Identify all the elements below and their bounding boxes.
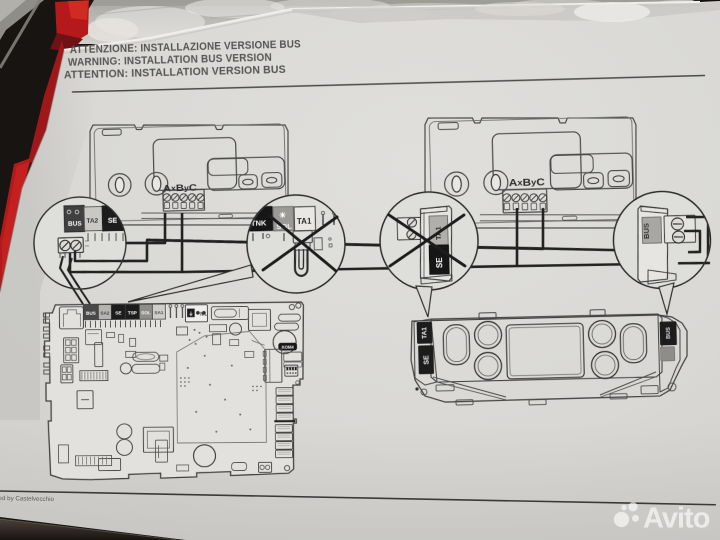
svg-text:⏚: ⏚: [189, 310, 194, 317]
svg-text:BUS: BUS: [642, 223, 651, 239]
svg-text:SE: SE: [108, 218, 118, 225]
svg-text:SA1: SA1: [154, 310, 163, 315]
svg-text:TA1: TA1: [297, 217, 312, 226]
svg-text:SOL: SOL: [141, 310, 151, 315]
svg-text:L: L: [204, 312, 207, 318]
svg-text:AxByC: AxByC: [509, 177, 545, 189]
svg-text:TA1: TA1: [421, 327, 428, 339]
svg-text:TSP: TSP: [128, 310, 137, 315]
svg-text:KOM4: KOM4: [282, 345, 295, 350]
svg-text:SE: SE: [423, 355, 430, 365]
svg-text:ted by Castelvecchio: ted by Castelvecchio: [0, 495, 55, 503]
svg-text:AxByC: AxByC: [163, 183, 198, 194]
svg-text:☀: ☀: [279, 211, 286, 220]
svg-text:TA2: TA2: [86, 218, 98, 225]
svg-text:BUS: BUS: [86, 311, 96, 316]
svg-text:BUS: BUS: [666, 327, 672, 339]
svg-text:Avito: Avito: [643, 503, 710, 535]
svg-text:SE: SE: [115, 310, 121, 315]
svg-text:SA2: SA2: [100, 311, 109, 316]
svg-text:SE: SE: [435, 257, 444, 269]
svg-text:BUS: BUS: [68, 221, 83, 228]
